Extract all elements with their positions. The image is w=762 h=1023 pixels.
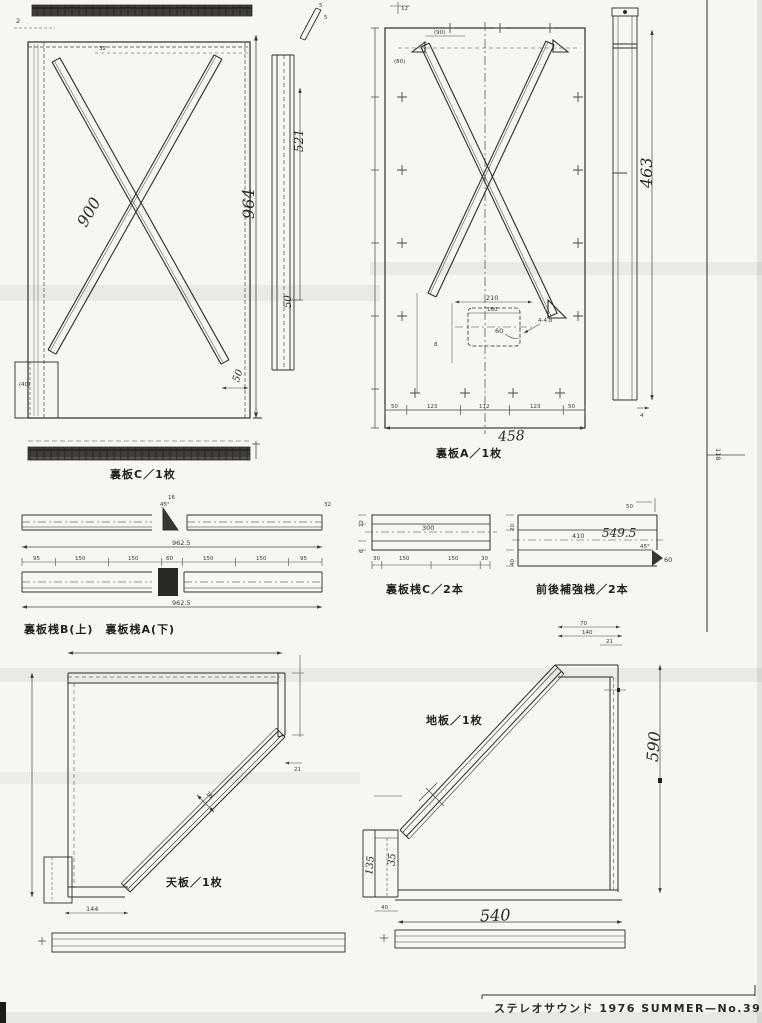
seg-dim: 150 xyxy=(128,556,139,562)
top-board-label: 天板／1枚 xyxy=(166,875,223,889)
top-board-front-rail xyxy=(38,933,345,952)
x-brace xyxy=(48,55,229,364)
top-board-right-dim: 21 xyxy=(294,767,301,773)
bottom-rail-bar xyxy=(28,447,250,460)
rail-c-left-top: 12 xyxy=(359,520,365,527)
seg-dim: 30 xyxy=(481,556,488,562)
handwritten-brace-dim: 900 xyxy=(73,194,105,230)
bb-front-rail xyxy=(380,930,625,948)
rail-fr-left-bottom: 40 xyxy=(510,559,516,566)
rail-c-seg-dims: 30 150 150 30 xyxy=(372,556,490,569)
top-board-bottom-dim: 144 xyxy=(86,905,98,913)
bottom-dims-a: 50 123 112 123 50 458 xyxy=(385,404,585,445)
dim-cutout-h: 60 xyxy=(495,327,503,335)
seg-dim: 123 xyxy=(530,404,541,410)
seg-dim: 112 xyxy=(479,404,490,410)
dim-cutout-w2: 160 xyxy=(487,307,498,313)
bb-foot-width: 40 xyxy=(381,905,388,911)
handwritten-foot2: 35 xyxy=(386,853,398,867)
dim-side-thick: 4 xyxy=(640,413,644,419)
dim-top-inner: 32 xyxy=(99,46,106,52)
panel-c-side-view xyxy=(272,55,294,370)
seg-dim: 95 xyxy=(300,556,307,562)
scanned-drawing-page: 32 900 (40) 2 50 裏板C／1枚 964 521 50 5 xyxy=(0,0,762,1023)
handwritten-foot1: 135 xyxy=(364,856,377,876)
bottom-board-label: 地板／1枚 xyxy=(426,713,483,727)
seg-dim: 150 xyxy=(399,556,410,562)
figure-rail-fr: 410 549.5 45° 60 50 20 40 前後補強桟／2本 xyxy=(506,498,672,596)
handwritten-length: 549.5 xyxy=(602,526,636,540)
dim-corner-a: (90) xyxy=(434,30,445,36)
handwritten-height: 964 xyxy=(239,188,258,219)
figure-back-panel-a: (90) (80) 12 210 160 60 4-4.8 8 50 123 1… xyxy=(371,2,656,460)
seg-dim: 60 xyxy=(166,556,173,562)
panel-a-label: 裏板A／1枚 xyxy=(435,446,502,460)
dim-left-small: 8 xyxy=(434,342,438,348)
handwritten-height-bb: 590 xyxy=(643,731,665,763)
seg-dim: 50 xyxy=(568,404,575,410)
seg-dim: 95 xyxy=(33,556,40,562)
rail-fr-center-dim: 410 xyxy=(572,532,584,540)
dim-left-a: (80) xyxy=(394,59,405,65)
footer-caption: ステレオサウンド 1976 SUMMER—No.39 xyxy=(494,1002,761,1015)
dim-cutout-w: 210 xyxy=(486,294,498,302)
handwritten-side-dim: 521 xyxy=(292,129,306,152)
drawing-canvas: 32 900 (40) 2 50 裏板C／1枚 964 521 50 5 xyxy=(0,0,762,1023)
edge-dim: 118 xyxy=(714,448,722,460)
dim-batten-a: 5 xyxy=(319,3,323,9)
wedge-dim: 16 xyxy=(168,495,175,501)
scan-artifacts xyxy=(0,0,762,1023)
handwritten-side-height: 463 xyxy=(637,157,656,189)
rail-c-label: 裏板桟C／2本 xyxy=(385,582,464,596)
rail-fr-angle: 45° xyxy=(640,544,650,550)
figure-top-board: 21 16 144 天板／1枚 xyxy=(32,653,345,952)
bb-top-dim2: 140 xyxy=(582,630,593,636)
figure-rail-c: 300 12 6 30 150 150 30 裏板桟C／2本 xyxy=(358,515,497,596)
rails-ba-label: 裏板桟B(上) 裏板桟A(下) xyxy=(23,622,175,636)
figure-back-panel-c: 32 900 (40) 2 50 裏板C／1枚 964 521 50 5 xyxy=(14,3,328,481)
lower-seg-dims: 95 150 150 60 150 150 95 xyxy=(22,556,322,566)
panel-a-side-view xyxy=(612,8,638,400)
corner-batten-detail xyxy=(300,8,321,40)
handwritten-width: 458 xyxy=(497,428,526,445)
top-rail-bar xyxy=(32,5,252,16)
seg-dim: 50 xyxy=(391,404,398,410)
handwritten-side-small: 50 xyxy=(283,295,294,308)
dim-foot: (40) xyxy=(19,382,30,388)
seg-dim: 150 xyxy=(203,556,214,562)
seg-dim: 123 xyxy=(427,404,438,410)
rail-fr-top-dim: 50 xyxy=(626,504,633,510)
dim-batten-b: 5 xyxy=(324,15,328,21)
registration-marks xyxy=(397,23,583,398)
handwritten-width-bb: 540 xyxy=(480,905,511,925)
rail-fr-label: 前後補強桟／2本 xyxy=(536,582,629,596)
end-dim: 32 xyxy=(324,502,331,508)
seg-dim: 150 xyxy=(256,556,267,562)
terminal-cutout: 210 160 60 4-4.8 8 xyxy=(417,293,553,393)
rail-c-center-dim: 300 xyxy=(422,524,434,532)
rail-c-left-bottom: 6 xyxy=(359,549,365,553)
rail-fr-bevel: 60 xyxy=(664,556,672,564)
dim-corner: 2 xyxy=(16,17,20,25)
upper-total: 962.5 xyxy=(172,539,191,547)
lower-total: 962.5 xyxy=(172,599,191,607)
seg-dim: 150 xyxy=(448,556,459,562)
wedge-angle: 45° xyxy=(160,502,170,508)
panel-c-label: 裏板C／1枚 xyxy=(109,467,176,481)
x-brace-a xyxy=(412,40,568,318)
seg-dim: 30 xyxy=(373,556,380,562)
figure-rails-ba: 45° 16 32 962.5 95 150 150 60 150 150 95… xyxy=(22,495,331,636)
seg-dim: 150 xyxy=(75,556,86,562)
bb-top-dim1: 70 xyxy=(580,621,587,627)
dim-top-a: 12 xyxy=(401,6,408,12)
handwritten-bottom-small: 50 xyxy=(231,367,246,383)
dim-holes: 4-4.8 xyxy=(538,318,553,324)
bb-right-small: 21 xyxy=(606,639,613,645)
